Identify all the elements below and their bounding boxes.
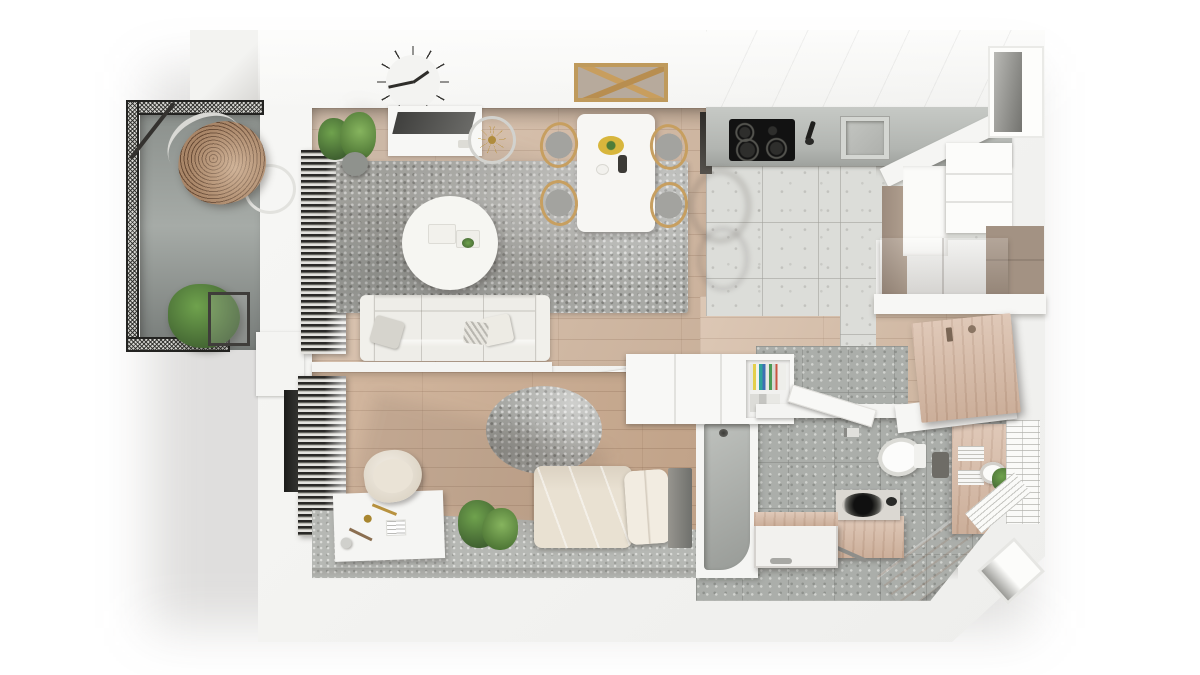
book-spines (750, 364, 786, 390)
sofa-armrest-right (535, 295, 550, 361)
bench-wood-lid (754, 512, 838, 526)
dining-bottle (618, 155, 627, 173)
shower-drain (719, 429, 728, 437)
entry-door (911, 313, 1021, 423)
kitchen-faucet-base (805, 138, 814, 145)
sofa-pillow-striped (463, 321, 489, 345)
washer-knob (886, 497, 897, 506)
tv-console (388, 106, 482, 156)
balcony-side-table (208, 292, 250, 346)
bed-duvet (534, 466, 632, 548)
floorplan-stage (0, 0, 1200, 675)
wall-niche-top-right (988, 46, 1044, 138)
bench-fittings (770, 558, 792, 564)
induction-cooktop (729, 119, 795, 161)
entry-door-handle (946, 327, 953, 342)
coffee-table-tray (428, 224, 456, 244)
desk-lamp-base (364, 515, 372, 523)
bedroom-plant-2 (482, 508, 518, 550)
vanity-shelf-towel-1 (958, 446, 984, 461)
bed-pillow (623, 469, 672, 546)
storage-bench (754, 512, 838, 568)
desk-lamp-arm (372, 503, 397, 516)
niche-inner-shade (994, 52, 1022, 132)
tv-screen (392, 112, 475, 134)
coffee-table-plant (462, 238, 474, 248)
bench-body (754, 524, 838, 568)
kitchen-sink-basin (846, 121, 884, 155)
bed-headboard (668, 468, 692, 548)
shower-floor (704, 424, 750, 570)
armchair-cushion (371, 456, 415, 495)
clock-hand-hour (412, 70, 429, 83)
balcony-door-sill (256, 332, 304, 396)
vanity-dark-towel (932, 452, 949, 478)
kitchen-shelf-white (874, 294, 1046, 314)
building-wing-top-left (190, 30, 260, 102)
shower-enclosure (696, 416, 758, 578)
clock-hand-minute (388, 81, 413, 89)
floor-lamp-bulb (488, 136, 496, 144)
dining-cup (596, 164, 609, 175)
washing-machine (834, 490, 904, 558)
toilet-paper-holder (844, 428, 859, 437)
bed (534, 464, 692, 548)
desk-pen (349, 528, 373, 541)
pendant-lamp-frame (574, 63, 668, 102)
balcony-railing-top (126, 100, 264, 115)
cabinet-taupe-lower (880, 238, 1008, 300)
living-plant-pot (342, 152, 368, 176)
floor-lamp (468, 116, 516, 164)
toilet-tank-plate (914, 444, 926, 468)
wall-clock-face (386, 55, 440, 109)
desk-paper (386, 519, 407, 536)
balcony-railing-left (126, 100, 139, 352)
kitchen-chair-shadow-2 (696, 226, 750, 292)
cabinet-white-drawers (946, 143, 1012, 233)
entry-door-peephole (968, 325, 977, 334)
kitchen-floor-c (840, 166, 876, 362)
desk-ornament (340, 537, 351, 548)
washer-drum (842, 493, 884, 517)
kitchen-sink (840, 116, 890, 160)
dining-table (577, 114, 655, 232)
ceiling-panel-seams (706, 30, 1012, 108)
dining-plate-yellow (598, 136, 624, 155)
